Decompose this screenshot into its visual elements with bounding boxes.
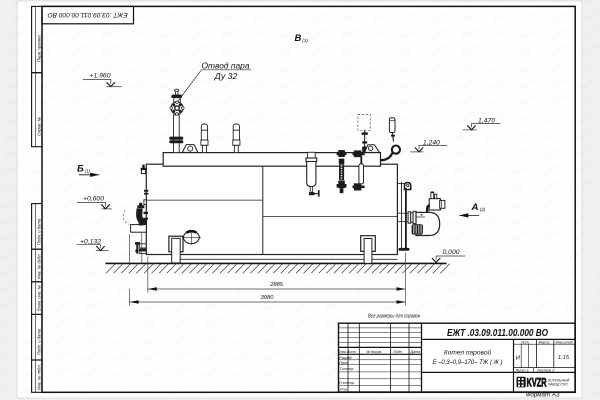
svg-text:(1): (1) (302, 38, 308, 43)
svg-text:ЕЖТ .03.09.011.00.000 ВО: ЕЖТ .03.09.011.00.000 ВО (447, 328, 548, 339)
svg-text:Формат А3: Формат А3 (526, 392, 560, 399)
svg-text:Подп. и дата: Подп. и дата (36, 328, 41, 355)
svg-text:1:15: 1:15 (558, 355, 570, 361)
svg-text:Изм Лист: Изм Лист (339, 350, 356, 354)
svg-text:3080: 3080 (261, 295, 275, 301)
svg-text:Лист 1: Лист 1 (515, 368, 529, 373)
svg-text:Котел паровой: Котел паровой (444, 349, 492, 357)
svg-text:Отвод пара: Отвод пара (202, 62, 250, 71)
svg-text:Инв. № подл.: Инв. № подл. (36, 364, 41, 390)
svg-text:Справ. №: Справ. № (36, 117, 41, 136)
svg-text:№ докум.: № докум. (366, 350, 382, 354)
svg-text:0,000: 0,000 (443, 249, 460, 256)
svg-text:Листов 2: Листов 2 (536, 368, 555, 373)
svg-text:Ду 32: Ду 32 (214, 72, 238, 81)
svg-text:Перв. примен.: Перв. примен. (36, 34, 41, 62)
svg-text:Подп.: Подп. (393, 350, 403, 354)
svg-text:В: В (295, 33, 302, 44)
svg-text:(2): (2) (480, 207, 486, 212)
svg-text:Масштаб: Масштаб (556, 340, 574, 344)
svg-text:Подп. и дата: Подп. и дата (36, 218, 41, 245)
svg-text:Лит.: Лит. (520, 340, 530, 344)
svg-text:Взам. инв. №: Взам. инв. № (36, 285, 41, 311)
svg-text:+1,960: +1,960 (90, 73, 111, 80)
svg-text:Е –0,3–0,9–170– ТЖ ( Ж ): Е –0,3–0,9–170– ТЖ ( Ж ) (433, 359, 503, 366)
svg-text:А: А (471, 202, 479, 213)
svg-text:Инв. № дубл.: Инв. № дубл. (36, 253, 41, 279)
svg-text:Масса: Масса (539, 340, 550, 344)
svg-text:ЗАВОД РЭП: ЗАВОД РЭП (548, 383, 568, 387)
svg-text:Разраб.: Разраб. (339, 356, 352, 360)
svg-text:Б: Б (77, 164, 84, 175)
svg-text:KVZR: KVZR (527, 378, 547, 390)
svg-text:Утв.: Утв. (339, 387, 347, 391)
svg-text:Пров.: Пров. (339, 361, 349, 365)
svg-text:ЕЖТ .03.09.011.00.000 ВО: ЕЖТ .03.09.011.00.000 ВО (48, 11, 128, 18)
svg-text:Дата: Дата (410, 350, 421, 354)
svg-text:Все размеры для справок: Все размеры для справок (368, 314, 420, 320)
svg-text:Н.контр.: Н.контр. (339, 381, 355, 385)
svg-text:2885: 2885 (269, 282, 284, 288)
svg-text:Т.контр.: Т.контр. (339, 367, 354, 371)
svg-text:(1): (1) (85, 168, 91, 173)
svg-text:+0,600: +0,600 (83, 196, 104, 203)
